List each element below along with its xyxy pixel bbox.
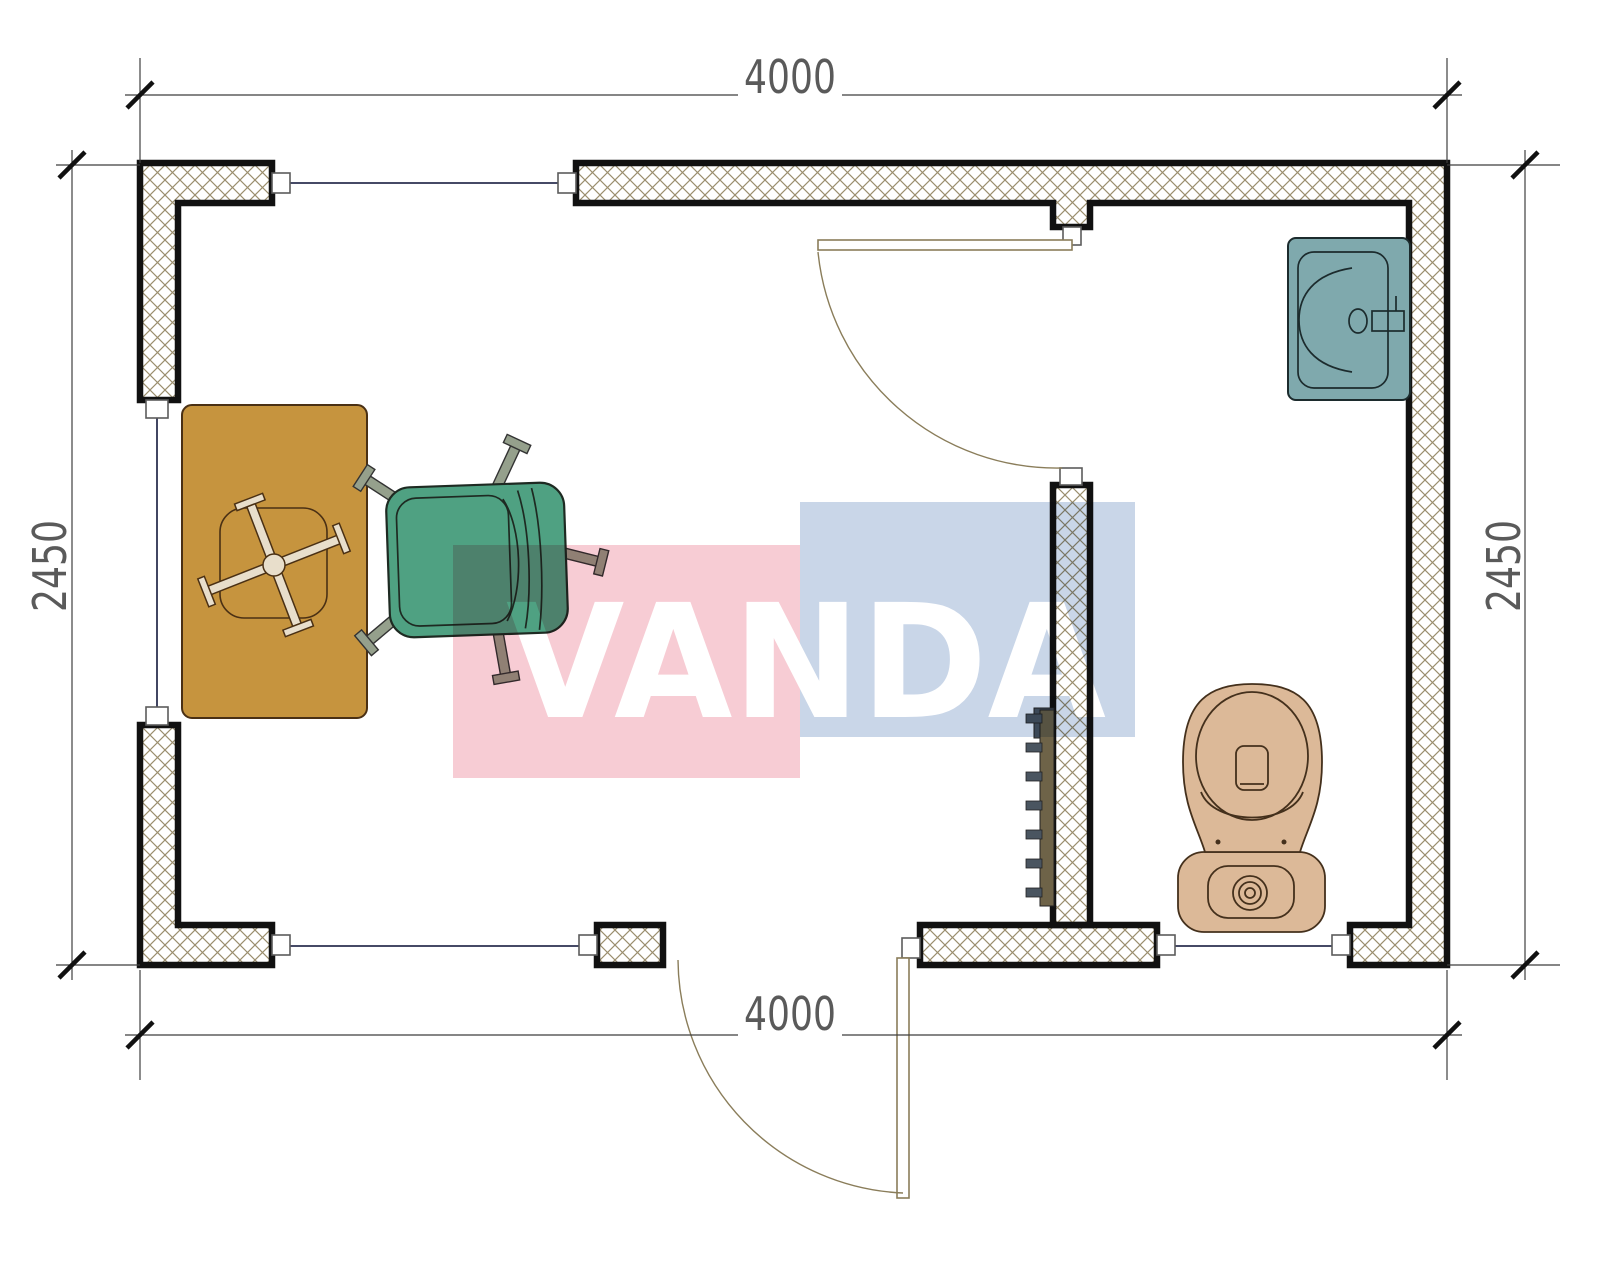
door-bathroom-swing-arc: [818, 252, 1062, 468]
floor-plan-drawing: VANDA: [0, 0, 1600, 1280]
dimension-text-bottom: 4000: [744, 987, 836, 1041]
wall-top-left-corner: [140, 163, 272, 400]
sink: [1288, 238, 1410, 400]
toilet-bowl: [1183, 684, 1322, 852]
window-top: [272, 173, 576, 193]
door-entrance-hinge-cap: [902, 938, 920, 958]
wall-bottom-middle: [920, 925, 1157, 965]
toilet: [1178, 684, 1325, 932]
door-bathroom-leaf: [818, 240, 1072, 250]
dimension-text-left: 2450: [23, 520, 77, 612]
dimension-text-top: 4000: [744, 50, 836, 104]
window-bottom-right: [1157, 935, 1350, 955]
watermark-text: VANDA: [506, 571, 1106, 755]
floor-plan-canvas: VANDA: [0, 0, 1600, 1280]
interior-partition-wall: [1053, 485, 1090, 925]
door-entrance-leaf: [897, 958, 909, 1198]
partition-end-cap: [1060, 468, 1082, 485]
toilet-tank: [1178, 852, 1325, 932]
chair-body: [385, 482, 568, 638]
desk: [182, 405, 367, 718]
door-bathroom: [818, 227, 1082, 485]
wall-bottom-left-corner: [140, 725, 272, 965]
dimension-text-right: 2450: [1477, 520, 1531, 612]
window-left: [146, 400, 168, 725]
wall-entry-pier: [597, 925, 663, 965]
window-bottom-left: [272, 935, 597, 955]
door-entrance: [678, 938, 920, 1198]
